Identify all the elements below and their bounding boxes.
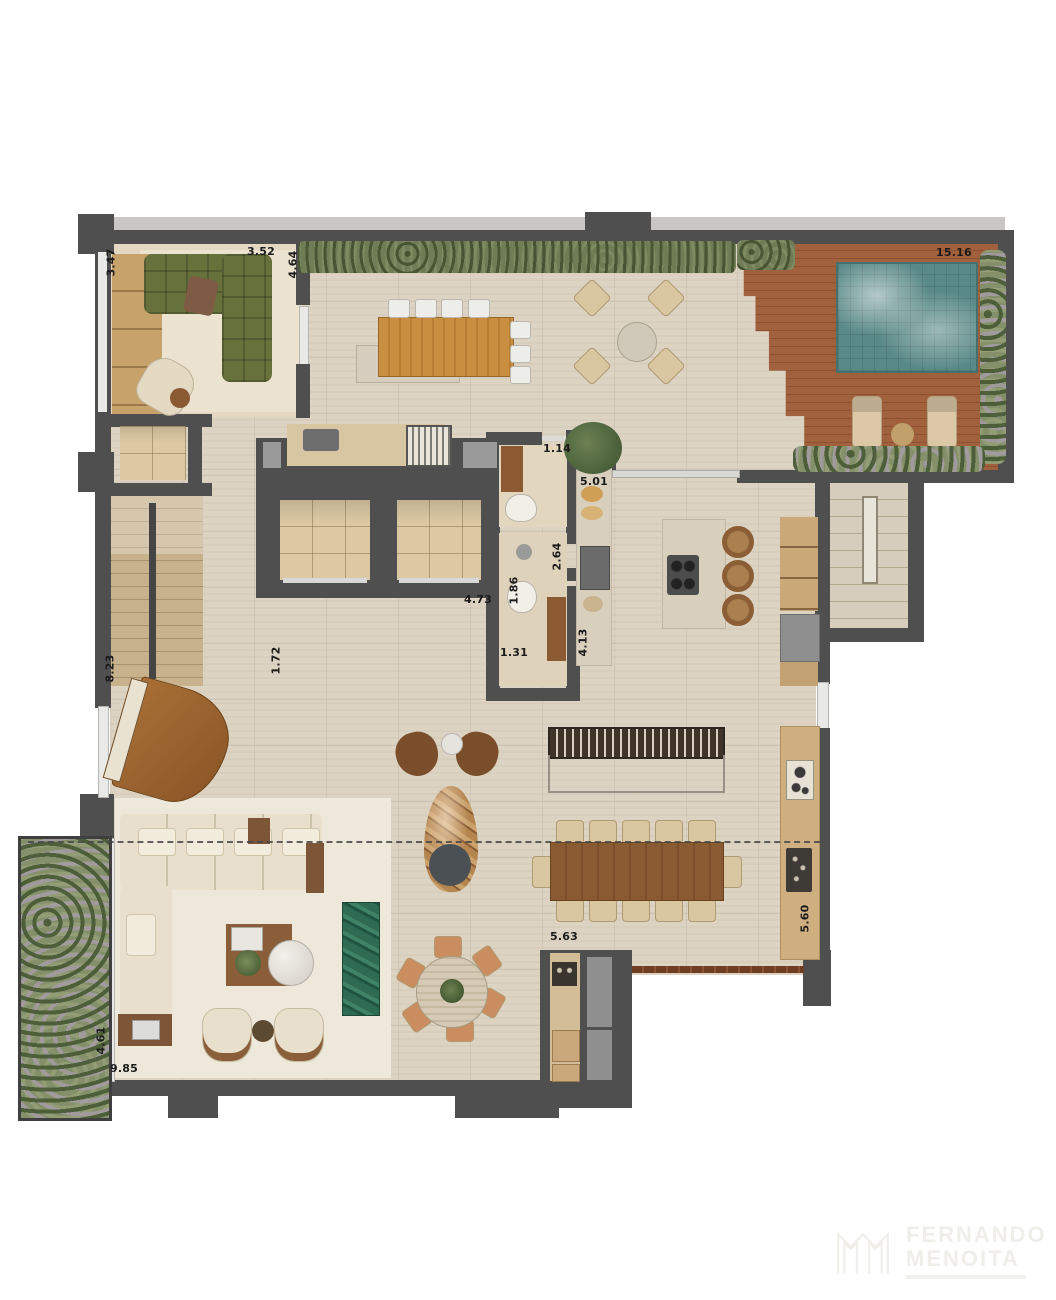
staircase-private-rail <box>862 496 878 584</box>
lavabo-cabinet <box>547 597 566 661</box>
wall-lavabo-bottom <box>486 688 580 701</box>
lavabo-vanity <box>501 446 523 492</box>
service-panel <box>587 1030 612 1080</box>
service-drawer <box>552 1030 580 1062</box>
refrigerator <box>780 614 820 662</box>
elevator-cab-2 <box>397 500 481 580</box>
island-cooktop <box>667 555 699 595</box>
dim-label-wc-width: 1.86 <box>508 574 521 608</box>
small-round-table <box>441 733 463 755</box>
dim-label-living-front: 9.85 <box>110 1062 138 1075</box>
sun-lounger <box>927 396 957 448</box>
wall-lavabo-left <box>486 432 500 700</box>
kitchen-shelving <box>780 517 818 611</box>
den-side-table <box>170 388 190 408</box>
green-marble-console <box>342 902 380 1016</box>
coffee-table-tray <box>231 927 263 951</box>
coffee-machine <box>552 962 577 986</box>
terrace-chair <box>415 299 437 318</box>
table-plant <box>440 979 464 1003</box>
terrace-round-table <box>617 322 657 362</box>
sill-gray-2 <box>463 442 497 468</box>
chaise-cushion <box>126 914 156 956</box>
dining-table-12 <box>550 842 724 901</box>
terrace-chair <box>388 299 410 318</box>
elevator-door-2 <box>399 578 479 583</box>
dim-label-den-side: 3.47 <box>105 246 118 280</box>
garden-planter-left <box>18 836 112 1121</box>
stone-seat <box>429 844 471 886</box>
dim-label-terrace-depth: 4.64 <box>287 248 300 282</box>
wall-stair-bottom <box>815 628 924 642</box>
floor-plan-canvas: 3.47 3.52 4.64 15.16 1.14 5.01 2.64 4.73… <box>0 0 1056 1300</box>
sofa-wood-end <box>306 843 324 893</box>
staircase-main-upper-flight <box>111 496 203 554</box>
exterior-void-below-stair <box>830 642 924 960</box>
living-armchair <box>274 1008 324 1062</box>
dim-label-counter-run: 5.01 <box>580 475 608 488</box>
wall-stair-right <box>908 478 924 642</box>
dining-chair <box>655 898 683 922</box>
terrace-chair <box>468 299 490 318</box>
fire-tray <box>132 1020 160 1040</box>
island-stool <box>722 560 754 592</box>
wall-lift-small-right <box>188 420 202 486</box>
dim-label-hall-width: 4.73 <box>464 593 492 606</box>
toilet-1 <box>505 494 537 522</box>
gourmet-appliance <box>786 848 812 892</box>
stair-rail <box>149 503 156 679</box>
terrace-chair <box>510 345 531 363</box>
lavabo-basin <box>516 544 532 560</box>
marble-side-table <box>268 940 314 986</box>
terrace-chair <box>441 299 463 318</box>
plate-stack-2 <box>581 506 603 520</box>
elevator-cab-1 <box>280 500 370 580</box>
gourmet-cooktop <box>786 760 814 800</box>
lobby-sink <box>303 429 339 451</box>
armchair-side-table <box>252 1020 274 1042</box>
section-line <box>28 841 820 843</box>
dim-label-pantry-run: 4.13 <box>577 626 590 660</box>
watermark-tagline-bar <box>906 1275 1026 1279</box>
dim-label-stair-wall: 8.23 <box>104 652 117 686</box>
hedge-top <box>298 241 736 273</box>
dining-chair <box>622 898 650 922</box>
elevator-cab-small <box>120 426 186 480</box>
dim-label-lift-hall: 1.72 <box>270 644 283 678</box>
dim-label-lavabo-depth: 2.64 <box>551 540 564 574</box>
fruit-bowl <box>583 596 603 612</box>
terrace-chair <box>510 321 531 339</box>
green-sectional-sofa-arm <box>222 254 272 382</box>
window-right <box>817 682 829 732</box>
column-top-center <box>585 212 651 244</box>
deck-plants-right <box>980 250 1006 464</box>
living-armchair <box>202 1008 252 1062</box>
service-panel <box>587 957 612 1027</box>
column-left-lower <box>80 794 114 838</box>
wall-lift-small-bottom <box>110 483 212 496</box>
breakfast-chair <box>434 936 462 958</box>
balcony-railing <box>632 966 804 973</box>
upper-cabinet <box>780 662 818 686</box>
parapet-top <box>100 217 1005 230</box>
deck-plants-bottom <box>793 446 985 472</box>
sun-lounger <box>852 396 882 448</box>
service-small-appliance <box>552 1064 580 1082</box>
dim-label-dining-span: 5.63 <box>550 930 578 943</box>
coffee-table-plant <box>235 950 261 976</box>
dim-label-gourmet-run: 5.60 <box>799 902 812 936</box>
wine-rack-shelf <box>548 755 725 793</box>
watermark-name-line2: MENOITA <box>906 1247 1047 1270</box>
watermark-name-line1: FERNANDO <box>906 1223 1047 1246</box>
wall-den-divider-bottom <box>296 364 310 418</box>
elevator-door-1 <box>283 578 367 583</box>
dim-label-wc-niche: 1.31 <box>500 646 528 659</box>
dim-label-deck-width: 15.16 <box>936 246 972 259</box>
dining-chair <box>556 898 584 922</box>
plate-stack-1 <box>581 486 603 502</box>
kitchen-sink <box>580 546 610 590</box>
dining-chair <box>589 898 617 922</box>
watermark: FERNANDO MENOITA <box>832 1216 1042 1286</box>
terrace-chair <box>510 366 531 384</box>
island-stool <box>722 526 754 558</box>
glass-terrace-kitchen <box>612 470 740 478</box>
bottle-rack <box>406 425 452 467</box>
dining-chair <box>688 898 716 922</box>
pool <box>836 262 978 373</box>
dim-label-entry-door: 1.14 <box>543 442 571 455</box>
gourmet-table <box>378 317 514 377</box>
column-stub-1 <box>168 1094 218 1118</box>
menoita-logo-icon <box>832 1220 894 1282</box>
island-stool <box>722 594 754 626</box>
planter-tree <box>564 422 622 474</box>
window-den-divider <box>299 306 309 366</box>
exterior-void-right <box>924 483 1056 958</box>
deck-side-table <box>891 423 914 446</box>
sill-gray-1 <box>263 442 281 468</box>
hedge-deck <box>737 240 795 270</box>
dim-label-living-side: 4.61 <box>95 1024 108 1058</box>
dim-label-den-width: 3.52 <box>247 245 275 258</box>
